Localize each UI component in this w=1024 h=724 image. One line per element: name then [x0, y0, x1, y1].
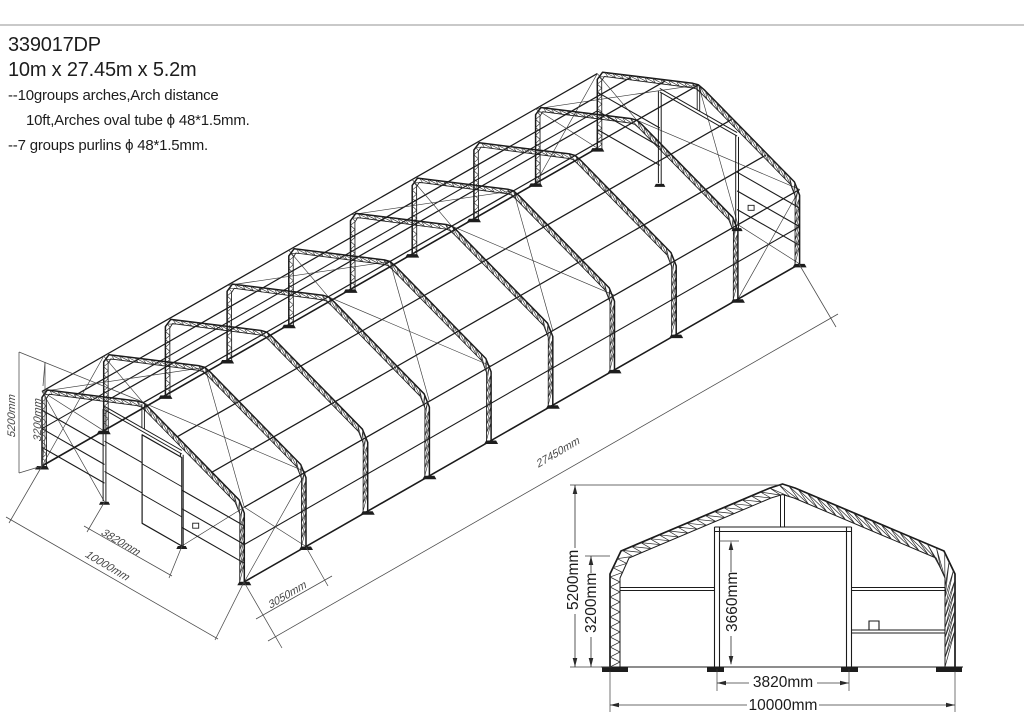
front-elevation-view — [601, 484, 963, 672]
iso-dim-total-width: 10000mm — [82, 550, 133, 583]
drawing-sheet: 339017DP 10m x 27.45m x 5.2m --10groups … — [0, 0, 1024, 724]
iso-dim-arch-spacing: 3050mm — [268, 578, 307, 612]
front-elevation-dimension-labels: 5200mm 3200mm 3660mm 3820mm 10000mm — [565, 550, 817, 714]
front-dim-side-height: 3200mm — [583, 573, 600, 633]
front-dim-door-height: 3660mm — [724, 572, 741, 632]
iso-dim-side-height: 3200mm — [32, 396, 44, 443]
iso-dim-total-height: 5200mm — [6, 392, 18, 439]
drawing-canvas: 5200mm 3200mm 3820mm 10000mm 3050mm 2745… — [0, 0, 1024, 724]
front-dim-total-height: 5200mm — [565, 550, 582, 610]
iso-dim-door-width: 3820mm — [98, 528, 144, 558]
front-dim-door-width: 3820mm — [753, 674, 813, 691]
isometric-view — [35, 72, 807, 585]
front-dim-total-width: 10000mm — [749, 697, 818, 714]
